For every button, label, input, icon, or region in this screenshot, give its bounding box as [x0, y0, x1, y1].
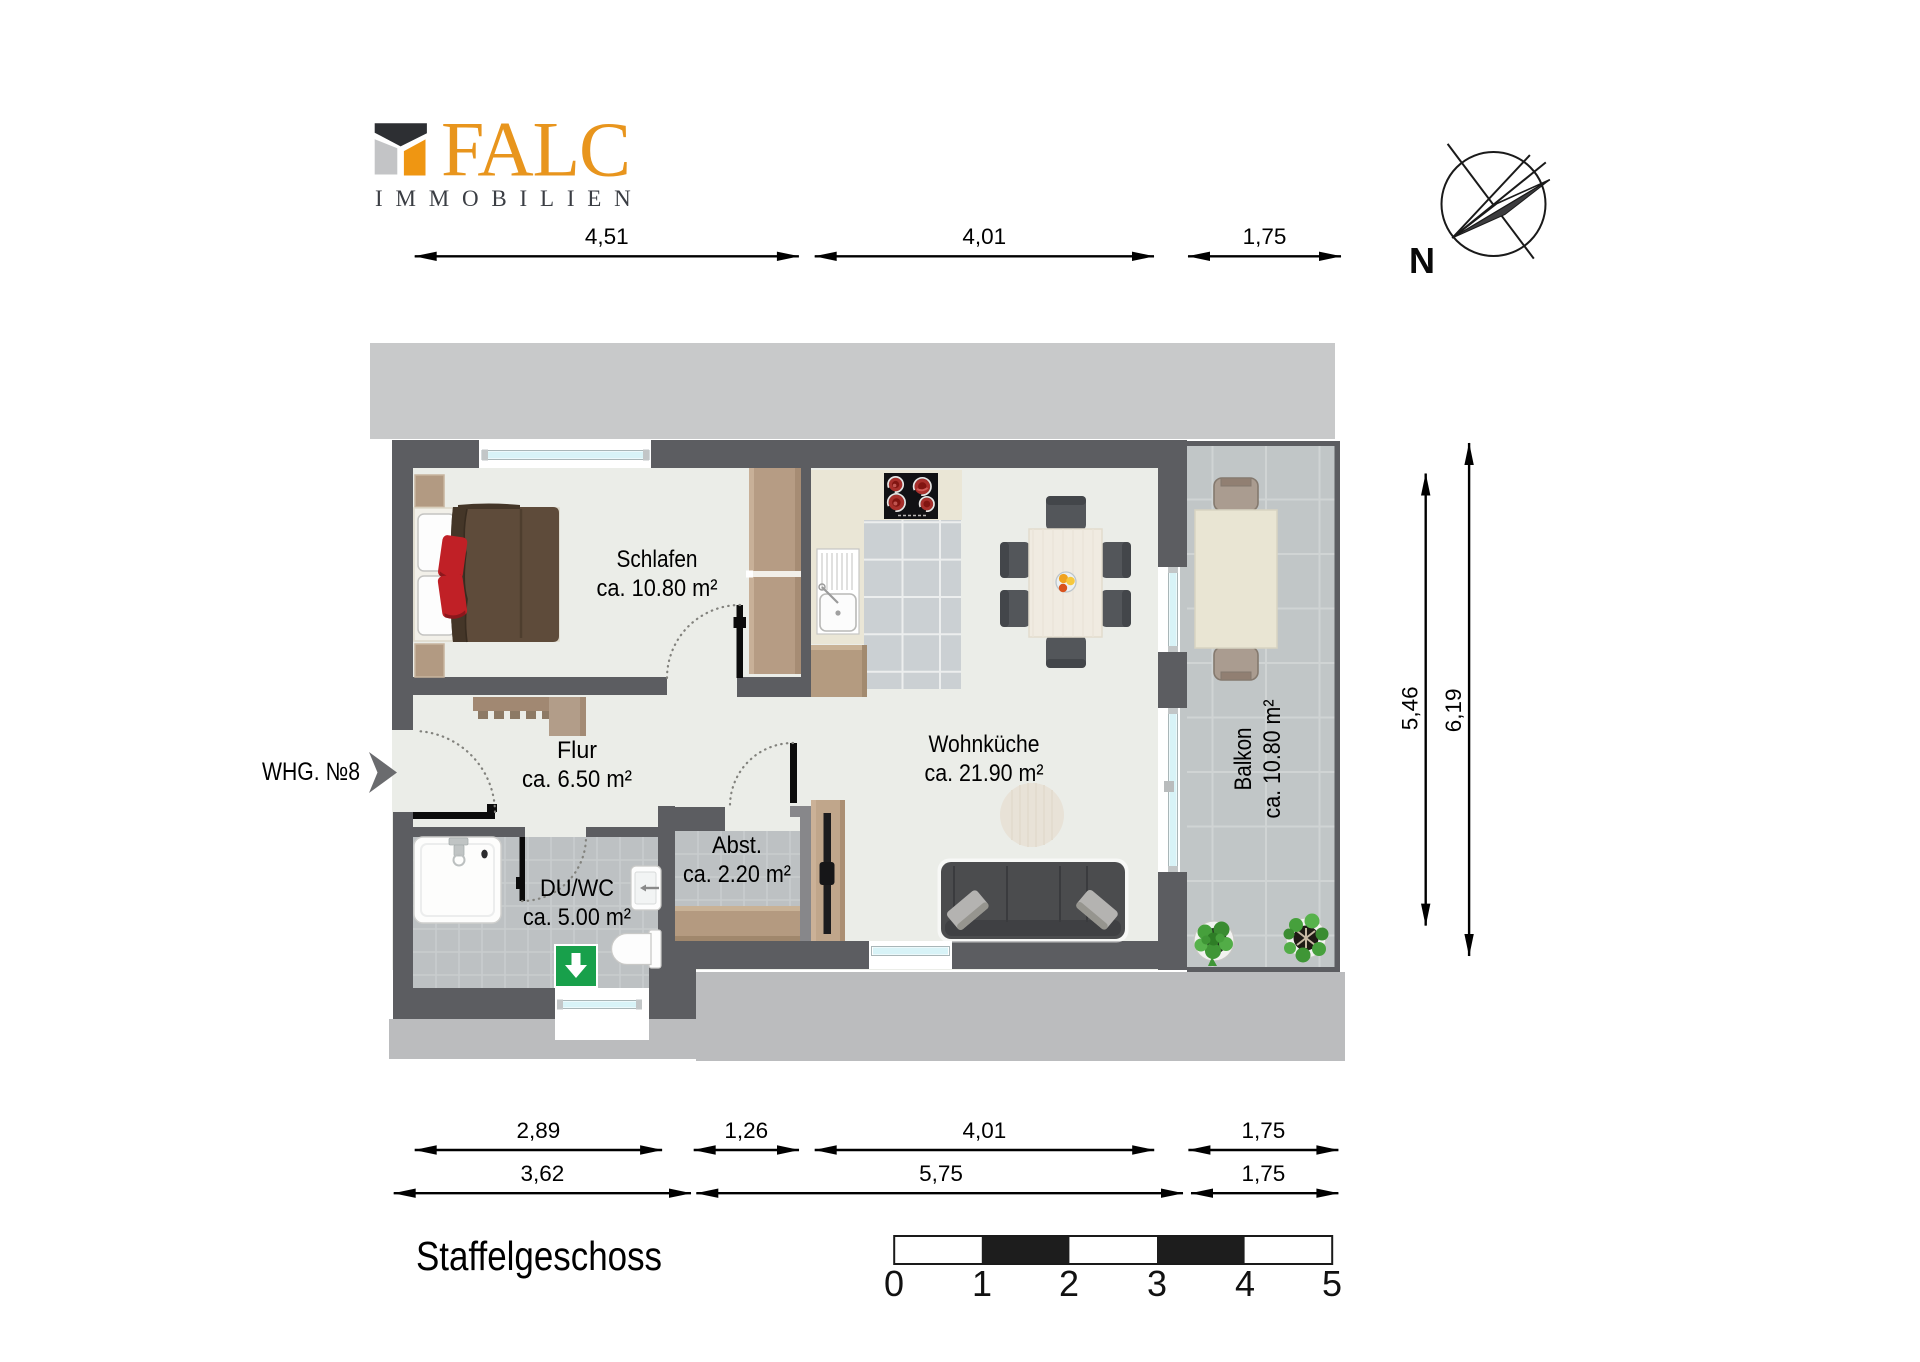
svg-text:ca. 10.80 m²: ca. 10.80 m²	[597, 575, 718, 602]
svg-text:IMMOBILIEN: IMMOBILIEN	[375, 186, 644, 211]
svg-text:5,75: 5,75	[919, 1161, 963, 1186]
svg-text:Flur: Flur	[557, 737, 597, 764]
svg-text:4,01: 4,01	[963, 1118, 1007, 1143]
svg-text:ca. 10.80 m²: ca. 10.80 m²	[1259, 700, 1286, 819]
svg-text:ca. 21.90 m²: ca. 21.90 m²	[925, 760, 1044, 787]
svg-text:Staffelgeschoss: Staffelgeschoss	[416, 1233, 662, 1279]
svg-text:4,01: 4,01	[962, 224, 1006, 249]
svg-text:ca. 5.00 m²: ca. 5.00 m²	[523, 904, 631, 931]
svg-text:5: 5	[1322, 1263, 1342, 1304]
svg-text:2: 2	[1059, 1263, 1079, 1304]
svg-text:4: 4	[1235, 1263, 1255, 1304]
svg-text:0: 0	[884, 1263, 904, 1304]
svg-text:6,19: 6,19	[1441, 689, 1466, 733]
svg-text:N: N	[1409, 240, 1435, 281]
svg-text:2,89: 2,89	[517, 1118, 561, 1143]
svg-text:WHG. №8: WHG. №8	[262, 758, 360, 786]
svg-text:FALC: FALC	[441, 106, 630, 193]
svg-text:4,51: 4,51	[585, 224, 629, 249]
svg-text:1,75: 1,75	[1242, 1118, 1286, 1143]
svg-text:1: 1	[972, 1263, 992, 1304]
svg-text:1,75: 1,75	[1243, 224, 1287, 249]
svg-text:5,46: 5,46	[1398, 686, 1423, 730]
svg-text:Abst.: Abst.	[712, 832, 762, 859]
svg-text:3,62: 3,62	[521, 1161, 565, 1186]
svg-text:Schlafen: Schlafen	[617, 546, 698, 573]
svg-text:Wohnküche: Wohnküche	[929, 731, 1040, 758]
svg-text:1,75: 1,75	[1242, 1161, 1286, 1186]
svg-text:DU/WC: DU/WC	[540, 875, 614, 902]
svg-text:3: 3	[1147, 1263, 1167, 1304]
svg-text:1,26: 1,26	[724, 1118, 768, 1143]
svg-text:ca. 6.50 m²: ca. 6.50 m²	[522, 766, 632, 793]
svg-text:ca. 2.20 m²: ca. 2.20 m²	[683, 861, 791, 888]
svg-text:Balkon: Balkon	[1230, 728, 1257, 791]
